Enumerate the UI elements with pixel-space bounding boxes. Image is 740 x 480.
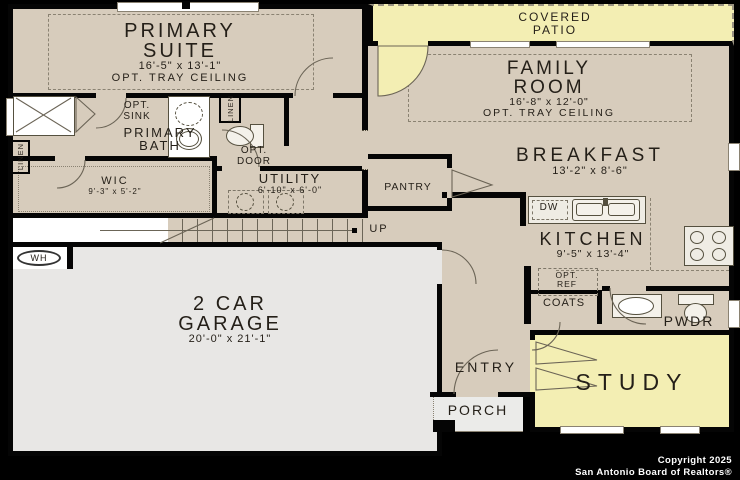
door-opening-garage: [437, 250, 442, 284]
breakfast-name: BREAKFAST: [478, 146, 702, 166]
opt-ref-label: OPT. REF: [540, 271, 594, 289]
sink-basin-right: [608, 203, 635, 216]
wall-kitchen-h: [442, 192, 526, 198]
door-opening-pantry: [447, 168, 452, 198]
water-heater: WH: [17, 250, 61, 266]
opt-sink-label: OPT. SINK: [108, 101, 166, 122]
linen-closet-right: LINEN: [219, 95, 241, 123]
wic-dims: 9'-3" x 5'-2": [60, 188, 170, 196]
door-opening-wic: [55, 156, 85, 161]
wall-strip-left: [8, 218, 13, 244]
wall-pantry-top: [363, 154, 452, 159]
primary-bath-name: PRIMARY BATH: [118, 126, 202, 152]
covered-patio-name: COVERED PATIO: [500, 11, 610, 36]
breakfast-label: BREAKFAST 13'-2" x 8'-6": [478, 146, 702, 177]
window-patio-2: [556, 41, 650, 48]
room-garage: [8, 242, 442, 456]
opt-door-text: OPT. DOOR: [235, 146, 273, 167]
burner-4: [712, 248, 726, 261]
sink-basin-left: [576, 203, 603, 216]
wall-block-bottom: [8, 213, 368, 218]
cased-opening-family: [362, 130, 368, 170]
wall-coats-left: [524, 266, 531, 324]
attribution-line: San Antonio Board of Realtors®: [575, 467, 732, 479]
sink-faucet: [603, 198, 608, 206]
burner-1: [690, 231, 704, 244]
shower: [13, 96, 75, 136]
entry-name: ENTRY: [446, 360, 526, 375]
entry-label: ENTRY: [446, 360, 526, 375]
coats-label: COATS: [531, 298, 597, 310]
door-opening-patio: [378, 41, 428, 46]
burner-3: [690, 248, 704, 261]
study-label: STUDY: [552, 370, 712, 394]
garage-name: 2 CAR GARAGE: [172, 294, 288, 334]
door-opening-study: [530, 340, 535, 392]
dw-text: DW: [532, 203, 566, 214]
pwdr-name: PWDR: [648, 314, 730, 329]
pwdr-sink: [618, 297, 654, 315]
opt-door-label: OPT. DOOR: [224, 146, 284, 167]
wall-pwdr-top-a: [602, 286, 610, 291]
coats-name: COATS: [531, 298, 597, 310]
porch-name: PORCH: [438, 403, 518, 418]
primary-suite-note: OPT. TRAY CEILING: [50, 73, 310, 85]
opt-ref-text: OPT. REF: [553, 271, 581, 289]
kitchen-label: KITCHEN 9'-5" x 13'-4": [518, 230, 668, 260]
window-study-2: [660, 426, 700, 434]
stairs-handrail: [100, 230, 356, 231]
door-opening-suite: [293, 93, 333, 98]
primary-suite-dims: 16'-5" x 13'-1": [50, 61, 310, 73]
wall-pantry-bottom: [363, 206, 452, 211]
window-patio-1: [470, 41, 530, 48]
range: [684, 226, 734, 266]
utility-label: UTILITY 6'-10" x 6'-0": [222, 172, 358, 195]
wic-label: WIC 9'-3" x 5'-2": [60, 176, 170, 196]
breakfast-dims: 13'-2" x 8'-6": [478, 166, 702, 178]
up-text: UP: [362, 224, 396, 236]
linen-label-left: LINEN: [16, 143, 25, 170]
linen-label-right: LINEN: [226, 95, 235, 122]
kitchen-dims: 9'-5" x 13'-4": [518, 249, 668, 260]
pantry-name: PANTRY: [372, 182, 444, 193]
toilet-bowl-bath: [226, 126, 254, 146]
primary-bath-label: PRIMARY BATH: [104, 126, 216, 152]
up-label: UP: [362, 224, 396, 236]
wic-name: WIC: [60, 176, 170, 188]
opt-sink-basin: [175, 102, 203, 126]
utility-dims: 6'-10" x 6'-0": [222, 186, 358, 195]
garage-dims: 20'-0" x 21'-1": [150, 334, 310, 346]
door-opening-bath: [96, 93, 126, 98]
family-room-name: FAMILY ROOM: [480, 60, 618, 97]
wall-wh-right: [67, 247, 73, 269]
primary-suite-name: PRIMARY SUITE: [106, 22, 254, 61]
window-study-1: [560, 426, 624, 434]
stairs-marker: [352, 228, 357, 233]
family-room-note: OPT. TRAY CEILING: [410, 108, 688, 119]
utility-name: UTILITY: [222, 172, 358, 186]
porch-post: [433, 420, 455, 432]
door-opening-entry: [456, 392, 498, 397]
primary-suite-label: PRIMARY SUITE 16'-5" x 13'-1" OPT. TRAY …: [50, 22, 310, 84]
dw-label: DW: [532, 203, 566, 214]
wall-pwdr-top-b: [646, 286, 734, 291]
wall-kitchen-v: [520, 192, 526, 226]
dryer-drum: [276, 193, 294, 211]
burner-2: [712, 231, 726, 244]
pwdr-label: PWDR: [648, 314, 730, 329]
window-breakfast-right: [728, 143, 740, 171]
kitchen-name: KITCHEN: [518, 230, 668, 249]
kitchen-sink: [572, 199, 640, 221]
copyright-line: Copyright 2025: [575, 455, 732, 467]
covered-patio-label: COVERED PATIO: [460, 11, 650, 36]
floor-plan: LINEN LINEN WH: [0, 0, 740, 480]
pantry-label: PANTRY: [372, 182, 444, 193]
washer-drum: [236, 193, 254, 211]
wall-bath-inner: [284, 98, 289, 146]
wh-label: WH: [31, 253, 48, 263]
family-room-label: FAMILY ROOM 16'-8" x 12'-0" OPT. TRAY CE…: [410, 60, 688, 119]
opt-sink-text: OPT. SINK: [120, 101, 154, 122]
window-suite-mullion: [182, 1, 190, 9]
garage-label: 2 CAR GARAGE 20'-0" x 21'-1": [150, 294, 310, 346]
study-name: STUDY: [552, 370, 712, 394]
porch-label: PORCH: [438, 403, 518, 418]
linen-closet-left: LINEN: [11, 140, 30, 174]
copyright-notice: Copyright 2025 San Antonio Board of Real…: [575, 455, 732, 479]
